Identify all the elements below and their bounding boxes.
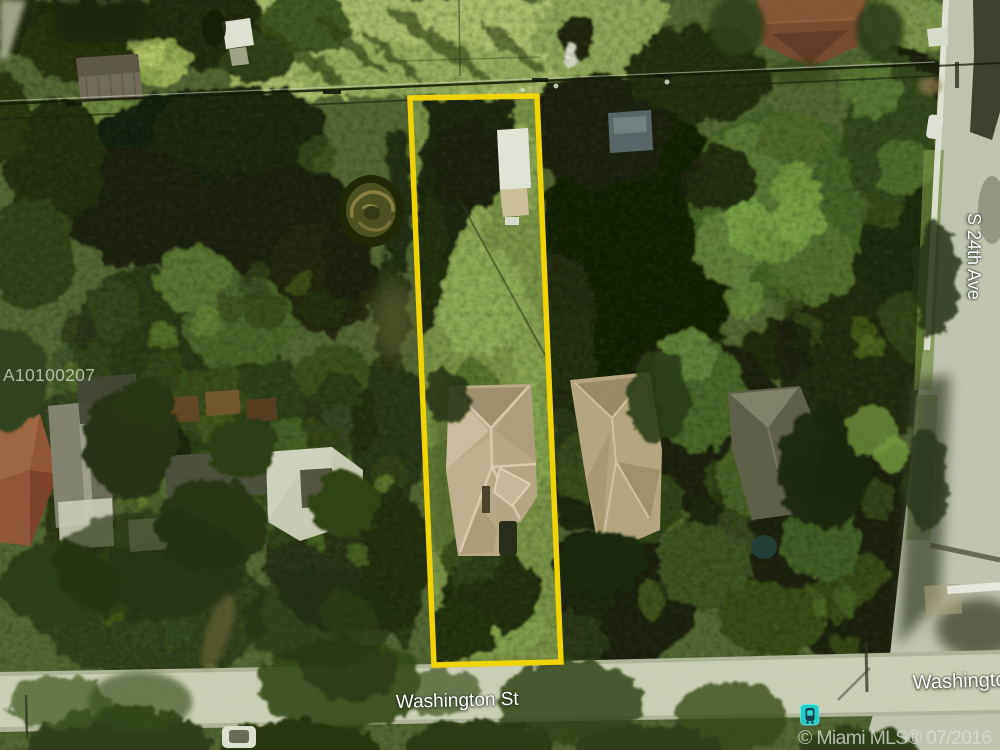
svg-text:Washington St: Washington St bbox=[396, 689, 520, 713]
svg-text:S 24th Ave: S 24th Ave bbox=[964, 213, 984, 300]
svg-text:© Miami MLS® 07/2016: © Miami MLS® 07/2016 bbox=[798, 727, 992, 749]
svg-text:A10100207: A10100207 bbox=[3, 365, 95, 385]
svg-text:Washington: Washington bbox=[912, 668, 1000, 694]
